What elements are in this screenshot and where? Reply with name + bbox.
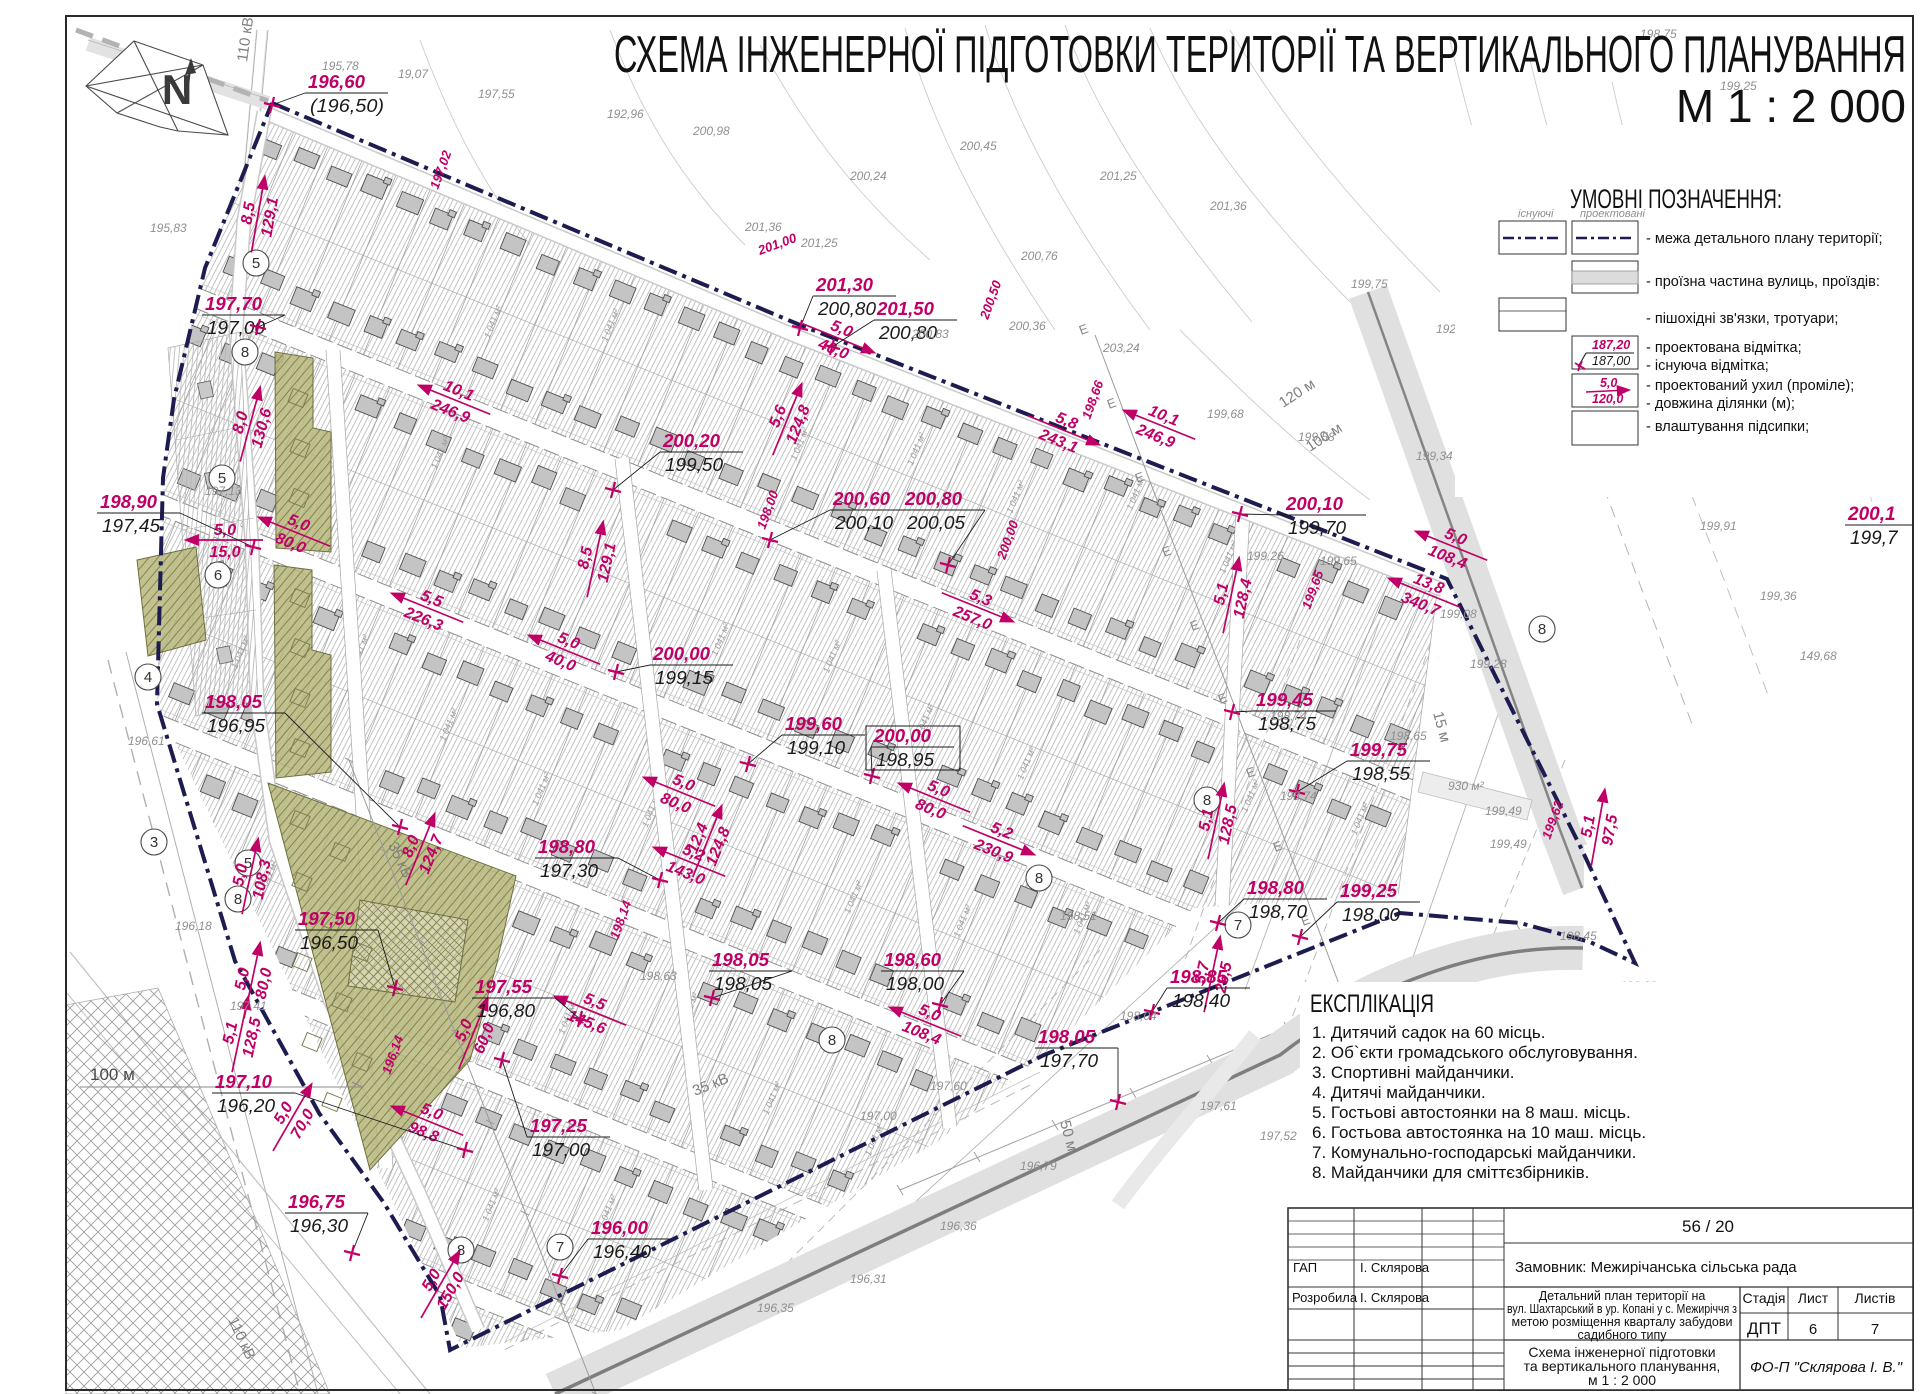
svg-text:197,55: 197,55 bbox=[478, 87, 515, 101]
svg-text:197,10: 197,10 bbox=[215, 1071, 273, 1092]
svg-text:8: 8 bbox=[457, 1242, 465, 1259]
svg-text:198,40: 198,40 bbox=[1172, 990, 1231, 1011]
svg-text:8: 8 bbox=[828, 1032, 836, 1049]
svg-text:6. Гостьова автостоянка на 10: 6. Гостьова автостоянка на 10 маш. місць… bbox=[1312, 1123, 1646, 1142]
svg-text:198,74: 198,74 bbox=[1270, 709, 1307, 723]
svg-text:198,80: 198,80 bbox=[1247, 877, 1305, 898]
svg-text:198,70: 198,70 bbox=[1249, 901, 1308, 922]
svg-text:196,31: 196,31 bbox=[850, 1272, 887, 1286]
svg-text:2. Об`єкти громадського обслуг: 2. Об`єкти громадського обслуговування. bbox=[1312, 1043, 1638, 1062]
svg-text:метою розміщення кварталу забу: метою розміщення кварталу забудови bbox=[1512, 1315, 1733, 1329]
svg-text:198,80: 198,80 bbox=[538, 836, 596, 857]
svg-text:200,45: 200,45 bbox=[959, 139, 997, 153]
svg-text:197,60: 197,60 bbox=[930, 1079, 967, 1093]
svg-text:200,05: 200,05 bbox=[906, 512, 966, 533]
svg-text:СХЕМА ІНЖЕНЕРНОЇ ПІДГОТОВКИ ТЕ: СХЕМА ІНЖЕНЕРНОЇ ПІДГОТОВКИ ТЕРИТОРІЇ ТА… bbox=[614, 26, 1906, 84]
svg-text:6: 6 bbox=[1809, 1321, 1817, 1338]
svg-text:201,36: 201,36 bbox=[1209, 199, 1247, 213]
svg-text:197,50: 197,50 bbox=[298, 908, 356, 929]
svg-text:Лист: Лист bbox=[1798, 1290, 1829, 1306]
svg-text:200,10: 200,10 bbox=[1285, 493, 1344, 514]
svg-text:196,50: 196,50 bbox=[300, 932, 359, 953]
svg-text:195,78: 195,78 bbox=[322, 59, 359, 73]
svg-text:199,34: 199,34 bbox=[1416, 449, 1453, 463]
svg-text:200,10: 200,10 bbox=[834, 512, 894, 533]
svg-text:199,49: 199,49 bbox=[1485, 804, 1522, 818]
svg-text:5: 5 bbox=[252, 255, 260, 272]
svg-text:200,76: 200,76 bbox=[1020, 249, 1058, 263]
svg-text:198,04: 198,04 bbox=[1120, 1009, 1157, 1023]
svg-text:7: 7 bbox=[556, 1239, 564, 1256]
svg-text:І. Склярова: І. Склярова bbox=[1360, 1260, 1430, 1275]
svg-text:ДПТ: ДПТ bbox=[1747, 1319, 1781, 1338]
svg-text:199,91: 199,91 bbox=[1700, 519, 1737, 533]
svg-text:199,28: 199,28 bbox=[1470, 657, 1507, 671]
svg-text:201,25: 201,25 bbox=[1099, 169, 1137, 183]
svg-text:199,10: 199,10 bbox=[787, 737, 846, 758]
svg-text:199,60: 199,60 bbox=[785, 713, 843, 734]
svg-text:199,7: 199,7 bbox=[1850, 528, 1899, 549]
svg-text:- проектована відмітка;: - проектована відмітка; bbox=[1646, 340, 1802, 356]
svg-text:198,51: 198,51 bbox=[1060, 909, 1097, 923]
svg-text:- довжина ділянки (м);: - довжина ділянки (м); bbox=[1646, 396, 1795, 412]
svg-text:ГАП: ГАП bbox=[1293, 1260, 1317, 1275]
svg-text:(196,50): (196,50) bbox=[310, 95, 384, 116]
svg-text:І. Склярова: І. Склярова bbox=[1360, 1290, 1430, 1305]
svg-text:198,00: 198,00 bbox=[886, 973, 945, 994]
svg-text:Детальний план території на: Детальний план території на bbox=[1539, 1289, 1706, 1303]
svg-text:8: 8 bbox=[234, 891, 242, 908]
svg-text:201,25: 201,25 bbox=[800, 236, 838, 250]
svg-text:201,36: 201,36 bbox=[744, 220, 782, 234]
svg-text:199,65: 199,65 bbox=[1320, 554, 1357, 568]
svg-text:198,05: 198,05 bbox=[714, 973, 773, 994]
svg-text:930 м²: 930 м² bbox=[1448, 779, 1485, 793]
svg-text:4. Дитячі майданчики.: 4. Дитячі майданчики. bbox=[1312, 1083, 1486, 1102]
svg-text:199,26: 199,26 bbox=[1247, 549, 1284, 563]
svg-text:196,00: 196,00 bbox=[591, 1217, 649, 1238]
svg-text:199,45: 199,45 bbox=[1256, 689, 1314, 710]
svg-text:200,60: 200,60 bbox=[832, 488, 891, 509]
svg-text:100 м: 100 м bbox=[90, 1065, 135, 1084]
svg-text:197,13: 197,13 bbox=[205, 484, 242, 498]
svg-text:199,36: 199,36 bbox=[1760, 589, 1797, 603]
svg-text:200,20: 200,20 bbox=[662, 430, 721, 451]
svg-text:198,00: 198,00 bbox=[1342, 904, 1401, 925]
svg-text:199,15: 199,15 bbox=[655, 667, 714, 688]
svg-text:Розробила: Розробила bbox=[1292, 1290, 1358, 1305]
svg-text:197,41: 197,41 bbox=[230, 999, 267, 1013]
svg-text:Стадія: Стадія bbox=[1742, 1290, 1785, 1306]
svg-text:- проїзна частина вулиць, прої: - проїзна частина вулиць, проїздів: bbox=[1646, 274, 1880, 290]
svg-text:3. Спортивні майданчики.: 3. Спортивні майданчики. bbox=[1312, 1063, 1515, 1082]
svg-text:- проектований ухил (проміле);: - проектований ухил (проміле); bbox=[1646, 378, 1854, 394]
svg-text:196,75: 196,75 bbox=[288, 1191, 346, 1212]
svg-text:196,40: 196,40 bbox=[593, 1241, 652, 1262]
svg-text:203,24: 203,24 bbox=[1102, 341, 1140, 355]
svg-text:197,61: 197,61 bbox=[1200, 1099, 1237, 1113]
svg-text:ФО-П "Склярова І. В.": ФО-П "Склярова І. В." bbox=[1750, 1359, 1903, 1376]
svg-text:200,36: 200,36 bbox=[1008, 319, 1046, 333]
svg-text:199,58: 199,58 bbox=[1298, 430, 1335, 444]
svg-text:8: 8 bbox=[1203, 792, 1211, 809]
svg-text:196,95: 196,95 bbox=[207, 715, 266, 736]
svg-text:198,85: 198,85 bbox=[1170, 966, 1228, 987]
svg-text:198,60: 198,60 bbox=[884, 949, 942, 970]
svg-text:199,25: 199,25 bbox=[1340, 880, 1398, 901]
svg-text:5,0: 5,0 bbox=[1600, 376, 1617, 390]
svg-text:197,00: 197,00 bbox=[532, 1139, 591, 1160]
svg-text:6: 6 bbox=[214, 567, 222, 584]
svg-text:200,80: 200,80 bbox=[817, 298, 877, 319]
svg-text:187,00: 187,00 bbox=[1592, 354, 1630, 368]
svg-text:192,96: 192,96 bbox=[607, 107, 644, 121]
svg-text:201,50: 201,50 bbox=[876, 298, 935, 319]
svg-text:8: 8 bbox=[241, 344, 249, 361]
svg-text:200,00: 200,00 bbox=[652, 643, 711, 664]
svg-text:198,05: 198,05 bbox=[1038, 1026, 1096, 1047]
svg-text:8: 8 bbox=[1035, 870, 1043, 887]
svg-text:3: 3 bbox=[150, 834, 158, 851]
svg-text:197,70: 197,70 bbox=[1040, 1050, 1099, 1071]
svg-text:196,80: 196,80 bbox=[477, 1000, 536, 1021]
svg-text:199,50: 199,50 bbox=[665, 454, 724, 475]
svg-text:1. Дитячий садок на 60 місць.: 1. Дитячий садок на 60 місць. bbox=[1312, 1023, 1545, 1042]
svg-text:196,20: 196,20 bbox=[217, 1095, 276, 1116]
svg-text:існуючі: існуючі bbox=[1518, 208, 1554, 220]
svg-text:200,80: 200,80 bbox=[904, 488, 963, 509]
svg-text:- влаштування підсипки;: - влаштування підсипки; bbox=[1646, 419, 1809, 435]
svg-text:196,36: 196,36 bbox=[940, 1219, 977, 1233]
svg-text:187,20: 187,20 bbox=[1592, 338, 1630, 352]
svg-text:120,0: 120,0 bbox=[1592, 392, 1623, 406]
svg-text:198,05: 198,05 bbox=[712, 949, 770, 970]
svg-text:199,68: 199,68 bbox=[1207, 407, 1244, 421]
svg-text:проектовані: проектовані bbox=[1580, 208, 1646, 220]
svg-text:197,45: 197,45 bbox=[102, 515, 161, 536]
svg-text:196,18: 196,18 bbox=[175, 919, 212, 933]
svg-text:198,90: 198,90 bbox=[100, 491, 158, 512]
svg-text:- існуюча відмітка;: - існуюча відмітка; bbox=[1646, 358, 1769, 374]
svg-text:вул. Шахтарський в ур. Копані: вул. Шахтарський в ур. Копані у с. Межир… bbox=[1507, 1302, 1737, 1316]
svg-text:199,75: 199,75 bbox=[1351, 277, 1388, 291]
svg-text:200,24: 200,24 bbox=[849, 169, 887, 183]
svg-text:197,00: 197,00 bbox=[860, 1109, 897, 1123]
svg-text:5. Гостьові автостоянки на 8 м: 5. Гостьові автостоянки на 8 маш. місць. bbox=[1312, 1103, 1631, 1122]
svg-text:198,63: 198,63 bbox=[640, 969, 677, 983]
svg-text:19,07: 19,07 bbox=[398, 67, 429, 81]
svg-text:56 / 20: 56 / 20 bbox=[1682, 1217, 1734, 1236]
svg-text:садибного типу: садибного типу bbox=[1578, 1328, 1668, 1342]
svg-text:- пішохідні зв'язки, тротуари;: - пішохідні зв'язки, тротуари; bbox=[1646, 311, 1838, 327]
svg-text:198,55: 198,55 bbox=[1352, 763, 1411, 784]
svg-text:М 1 : 2 000: М 1 : 2 000 bbox=[1676, 80, 1906, 132]
svg-text:200,1: 200,1 bbox=[1847, 504, 1896, 525]
svg-text:198,45: 198,45 bbox=[1560, 929, 1597, 943]
svg-text:199,70: 199,70 bbox=[1288, 517, 1347, 538]
svg-text:198,05: 198,05 bbox=[205, 691, 263, 712]
svg-text:197,70: 197,70 bbox=[205, 293, 263, 314]
svg-text:198,74: 198,74 bbox=[1280, 789, 1317, 803]
svg-text:15,0: 15,0 bbox=[209, 544, 240, 561]
svg-text:196,79: 196,79 bbox=[1020, 1159, 1057, 1173]
svg-text:ЕКСПЛІКАЦІЯ: ЕКСПЛІКАЦІЯ bbox=[1310, 990, 1434, 1018]
svg-text:197,30: 197,30 bbox=[540, 860, 599, 881]
svg-text:- межа детального плану терито: - межа детального плану території; bbox=[1646, 231, 1883, 247]
svg-text:197,25: 197,25 bbox=[530, 1115, 588, 1136]
svg-text:7: 7 bbox=[1234, 917, 1242, 934]
svg-text:Замовник: Межирічанська сільс: Замовник: Межирічанська сільська рада bbox=[1515, 1259, 1797, 1276]
svg-text:200,98: 200,98 bbox=[692, 124, 730, 138]
svg-text:197,55: 197,55 bbox=[475, 976, 533, 997]
svg-text:196,60: 196,60 bbox=[308, 71, 366, 92]
svg-text:Листів: Листів bbox=[1855, 1290, 1896, 1306]
svg-text:4: 4 bbox=[144, 669, 152, 686]
svg-text:198,95: 198,95 bbox=[876, 749, 935, 770]
svg-text:199,08: 199,08 bbox=[1440, 607, 1477, 621]
svg-text:149,68: 149,68 bbox=[1800, 649, 1837, 663]
svg-text:8. Майданчики для сміттєзбірни: 8. Майданчики для сміттєзбірників. bbox=[1312, 1163, 1589, 1182]
svg-text:7: 7 bbox=[1871, 1321, 1879, 1338]
svg-text:196,61: 196,61 bbox=[128, 734, 165, 748]
svg-text:м 1 : 2 000: м 1 : 2 000 bbox=[1588, 1372, 1656, 1388]
svg-text:198,65: 198,65 bbox=[1390, 729, 1427, 743]
svg-text:197,52: 197,52 bbox=[1260, 1129, 1297, 1143]
svg-text:199,49: 199,49 bbox=[1490, 837, 1527, 851]
svg-text:7. Комунально-господарські май: 7. Комунально-господарські майданчики. bbox=[1312, 1143, 1636, 1162]
svg-text:8: 8 bbox=[1538, 621, 1546, 638]
svg-text:200,00: 200,00 bbox=[873, 725, 932, 746]
svg-text:200,83: 200,83 bbox=[911, 327, 949, 341]
svg-text:196,30: 196,30 bbox=[290, 1215, 349, 1236]
svg-text:201,30: 201,30 bbox=[815, 274, 874, 295]
svg-text:195,83: 195,83 bbox=[150, 221, 187, 235]
svg-text:196,35: 196,35 bbox=[757, 1301, 794, 1315]
